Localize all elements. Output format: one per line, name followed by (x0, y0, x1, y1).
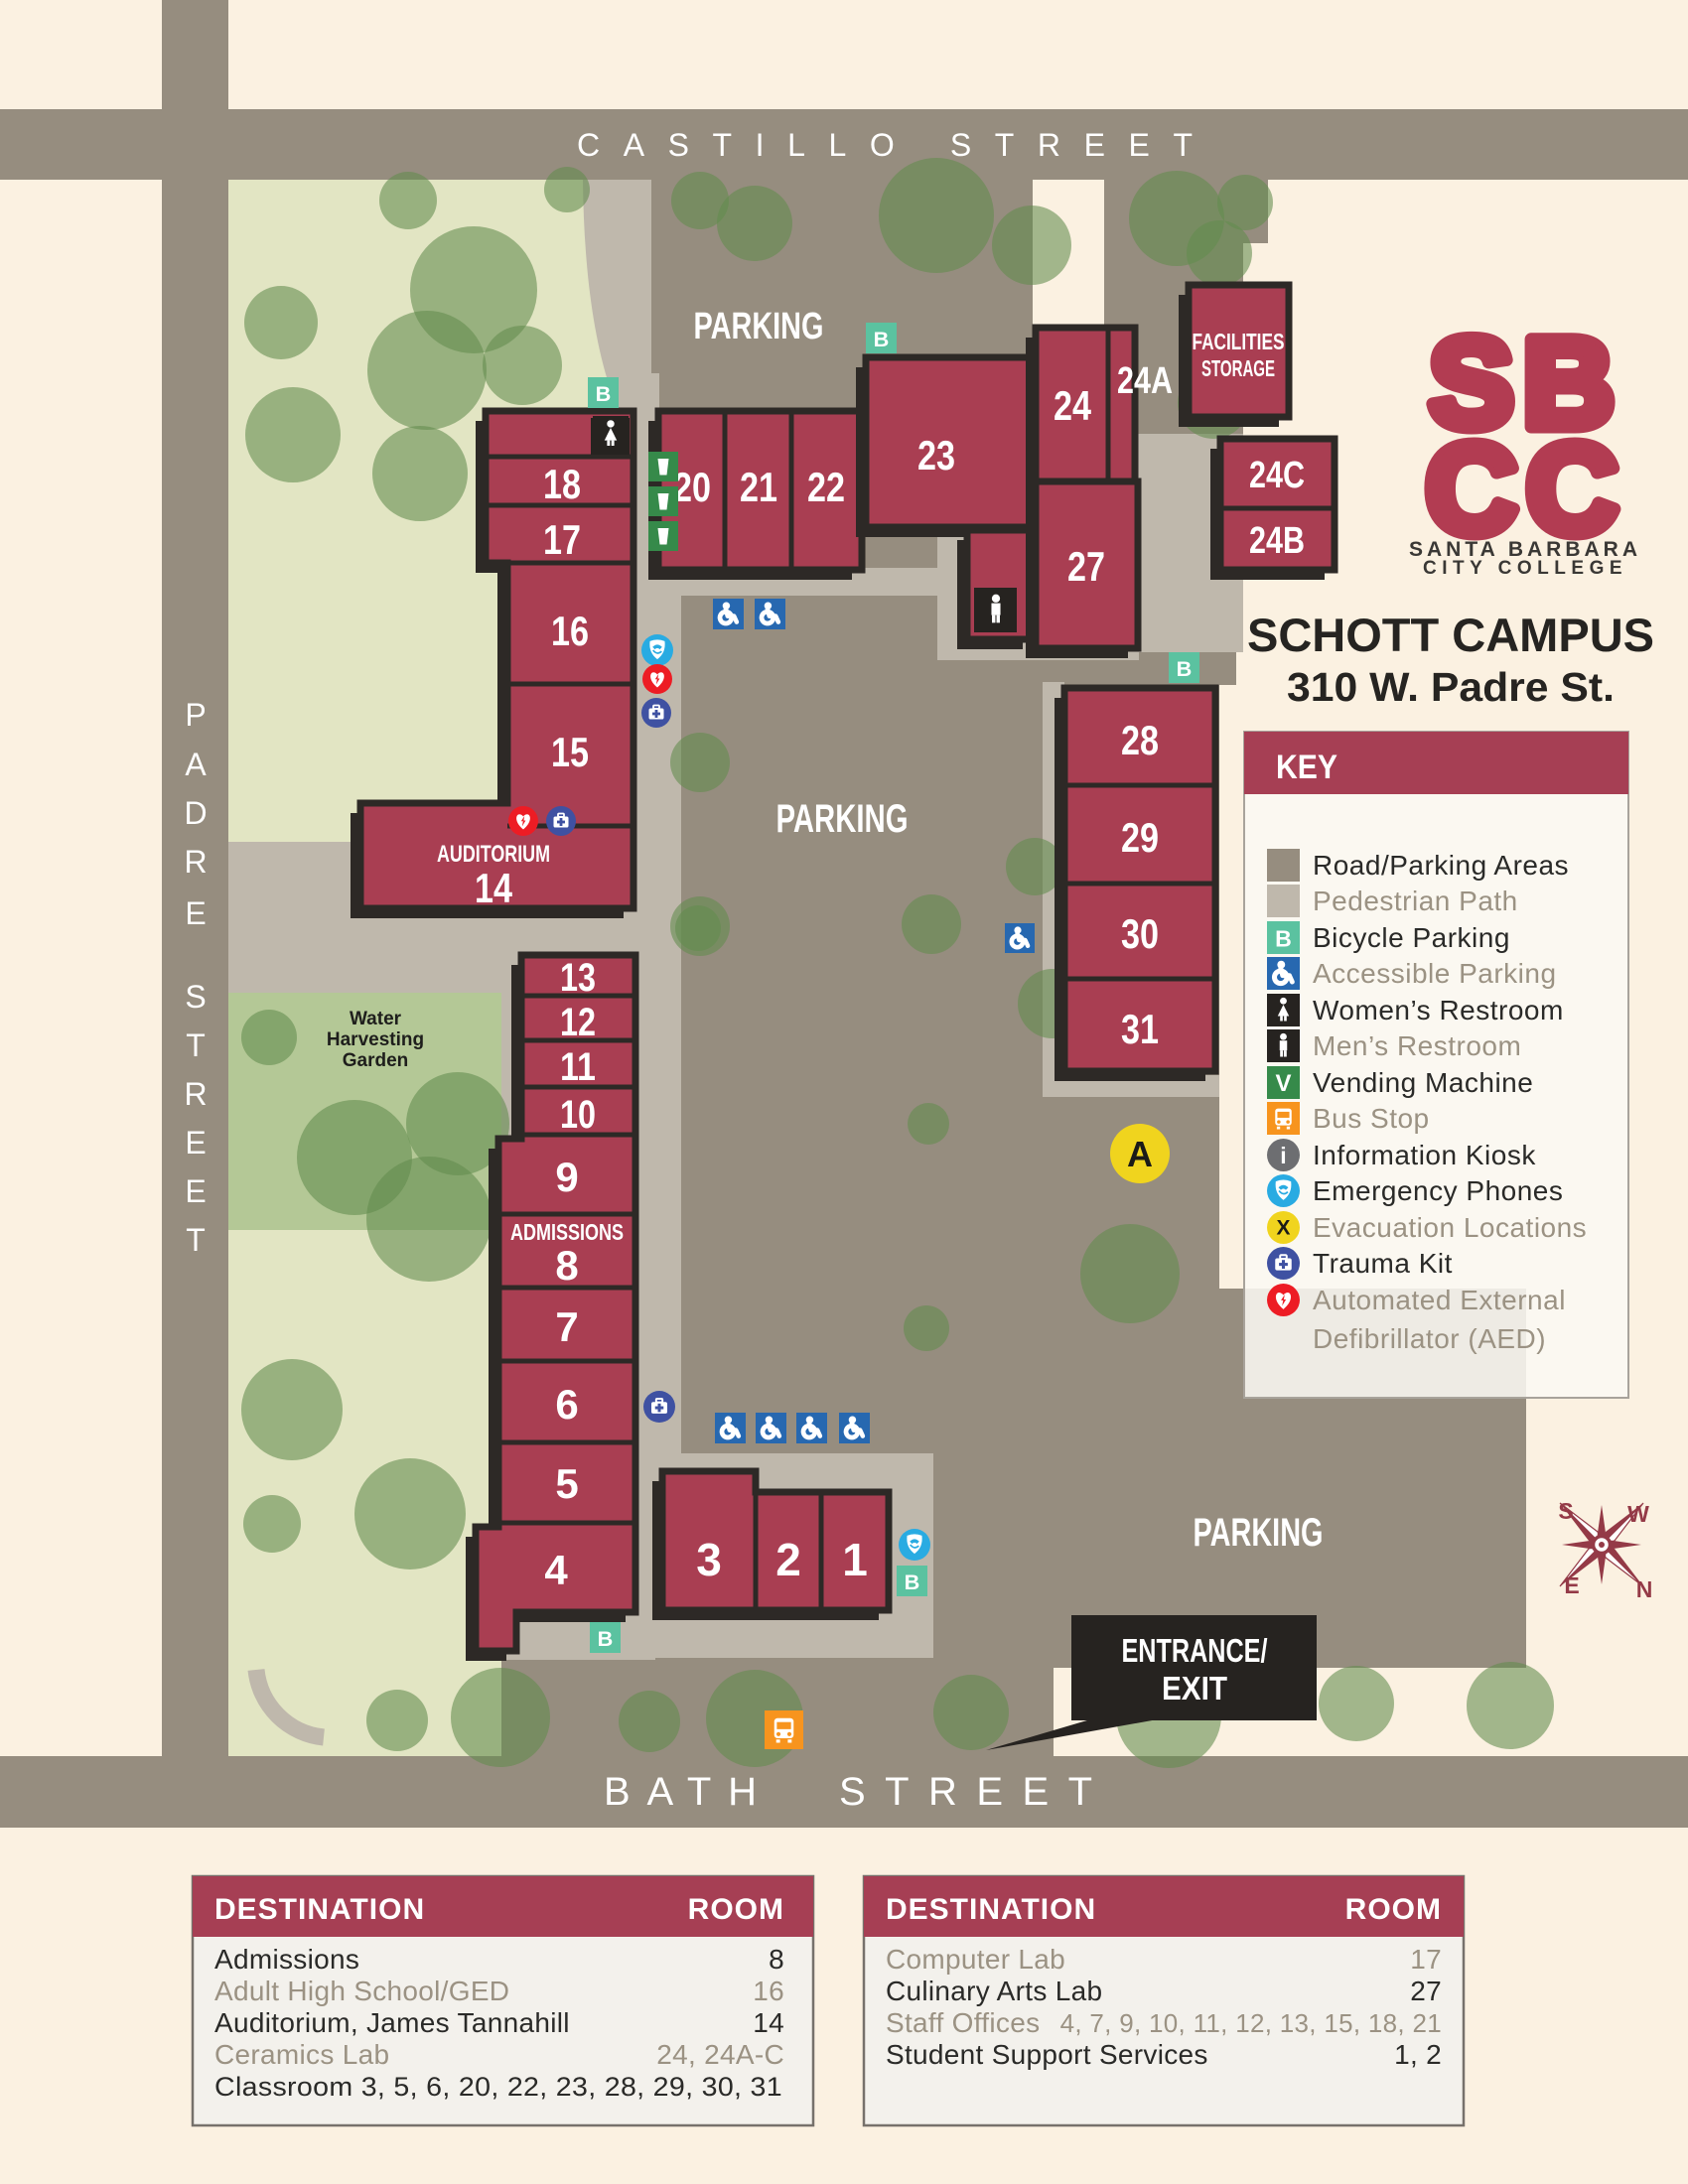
svg-text:DESTINATION: DESTINATION (214, 1893, 425, 1926)
svg-text:24C: 24C (1249, 455, 1305, 496)
svg-text:310 W. Padre St.: 310 W. Padre St. (1287, 664, 1615, 710)
svg-text:T: T (186, 1222, 206, 1258)
svg-text:ROOM: ROOM (1345, 1893, 1442, 1926)
svg-text:10: 10 (560, 1093, 596, 1137)
svg-text:Computer Lab: Computer Lab (886, 1944, 1065, 1975)
svg-text:28: 28 (1121, 717, 1159, 763)
svg-text:Student Support Services: Student Support Services (886, 2039, 1208, 2070)
svg-text:Automated External: Automated External (1313, 1285, 1566, 1315)
svg-text:24, 24A-C: 24, 24A-C (656, 2039, 784, 2070)
svg-text:T: T (186, 1027, 206, 1063)
svg-text:17: 17 (543, 516, 581, 563)
svg-text:24: 24 (1054, 382, 1092, 429)
svg-text:4, 7, 9, 10, 11, 12, 13, 15, 1: 4, 7, 9, 10, 11, 12, 13, 15, 18, 21 (1060, 2008, 1442, 2038)
svg-text:Defibrillator (AED): Defibrillator (AED) (1313, 1323, 1546, 1354)
svg-text:1: 1 (842, 1534, 868, 1585)
svg-text:8: 8 (555, 1242, 578, 1289)
svg-text:CASTILLO STREET: CASTILLO STREET (577, 127, 1193, 163)
svg-text:Evacuation Locations: Evacuation Locations (1313, 1212, 1587, 1243)
svg-text:DESTINATION: DESTINATION (886, 1893, 1096, 1926)
svg-text:4: 4 (544, 1547, 568, 1593)
svg-text:24B: 24B (1249, 520, 1305, 562)
svg-text:Classroom 3, 5, 6, 20, 22, 23,: Classroom 3, 5, 6, 20, 22, 23, 28, 29, 3… (214, 2072, 782, 2102)
svg-text:E: E (1564, 1572, 1579, 1598)
svg-text:S: S (185, 979, 206, 1015)
svg-text:31: 31 (1121, 1006, 1159, 1052)
svg-text:15: 15 (551, 729, 589, 775)
svg-text:Information Kiosk: Information Kiosk (1313, 1140, 1536, 1170)
svg-text:ROOM: ROOM (688, 1893, 784, 1926)
svg-text:14: 14 (753, 2007, 784, 2038)
svg-text:Garden: Garden (343, 1050, 409, 1071)
svg-text:9: 9 (555, 1154, 578, 1200)
svg-text:6: 6 (555, 1381, 578, 1428)
svg-text:P: P (185, 697, 206, 733)
svg-text:12: 12 (560, 1001, 596, 1044)
svg-text:SCHOTT CAMPUS: SCHOTT CAMPUS (1247, 609, 1654, 661)
svg-text:D: D (184, 795, 207, 831)
svg-text:Admissions: Admissions (214, 1944, 359, 1975)
svg-text:Trauma Kit: Trauma Kit (1313, 1248, 1453, 1279)
svg-text:KEY: KEY (1276, 749, 1337, 786)
svg-text:Women’s Restroom: Women’s Restroom (1313, 995, 1564, 1025)
svg-text:21: 21 (740, 464, 777, 510)
svg-text:Auditorium, James Tannahill: Auditorium, James Tannahill (214, 2007, 570, 2038)
svg-text:8: 8 (769, 1944, 784, 1975)
svg-text:27: 27 (1067, 543, 1105, 590)
svg-text:Men’s Restroom: Men’s Restroom (1313, 1030, 1521, 1061)
svg-text:FACILITIES: FACILITIES (1193, 329, 1285, 354)
svg-text:W: W (1627, 1501, 1649, 1527)
svg-text:STORAGE: STORAGE (1201, 355, 1275, 381)
svg-text:A: A (1127, 1134, 1153, 1174)
svg-text:27: 27 (1410, 1976, 1442, 2006)
svg-text:Bus Stop: Bus Stop (1313, 1103, 1430, 1134)
svg-text:CITY COLLEGE: CITY COLLEGE (1423, 558, 1627, 579)
svg-text:Water: Water (350, 1009, 402, 1029)
svg-text:PARKING: PARKING (694, 306, 824, 347)
svg-text:Pedestrian Path: Pedestrian Path (1313, 886, 1518, 916)
svg-text:Ceramics Lab: Ceramics Lab (214, 2039, 389, 2070)
svg-text:E: E (185, 895, 206, 931)
svg-text:16: 16 (753, 1976, 784, 2006)
svg-text:24A: 24A (1117, 360, 1173, 402)
svg-text:N: N (1636, 1576, 1653, 1602)
svg-text:A: A (185, 747, 207, 782)
svg-text:E: E (185, 1125, 206, 1160)
svg-text:3: 3 (696, 1534, 722, 1585)
svg-text:17: 17 (1410, 1944, 1442, 1975)
svg-text:PARKING: PARKING (776, 797, 909, 841)
svg-text:13: 13 (560, 956, 596, 1000)
svg-text:18: 18 (543, 461, 581, 507)
svg-text:ENTRANCE/: ENTRANCE/ (1122, 1632, 1268, 1669)
svg-text:1, 2: 1, 2 (1394, 2039, 1442, 2070)
svg-text:Culinary Arts Lab: Culinary Arts Lab (886, 1976, 1102, 2006)
svg-text:14: 14 (475, 865, 513, 911)
svg-text:7: 7 (555, 1303, 578, 1350)
svg-text:S: S (1558, 1498, 1573, 1524)
svg-text:Accessible Parking: Accessible Parking (1313, 958, 1557, 989)
svg-text:E: E (185, 1173, 206, 1209)
svg-text:11: 11 (560, 1045, 596, 1089)
svg-text:Staff Offices: Staff Offices (886, 2007, 1040, 2038)
svg-text:Emergency Phones: Emergency Phones (1313, 1175, 1563, 1206)
svg-text:AUDITORIUM: AUDITORIUM (437, 841, 550, 868)
svg-text:Adult High School/GED: Adult High School/GED (214, 1976, 509, 2006)
svg-text:Vending Machine: Vending Machine (1313, 1067, 1533, 1098)
svg-text:Harvesting: Harvesting (327, 1029, 424, 1050)
svg-text:22: 22 (807, 464, 845, 510)
svg-text:R: R (184, 1076, 207, 1112)
svg-text:Bicycle Parking: Bicycle Parking (1313, 922, 1510, 953)
svg-text:30: 30 (1121, 910, 1159, 957)
svg-text:R: R (184, 844, 207, 880)
svg-text:Road/Parking Areas: Road/Parking Areas (1313, 850, 1569, 881)
svg-text:2: 2 (775, 1534, 801, 1585)
svg-text:EXIT: EXIT (1162, 1670, 1227, 1706)
svg-text:23: 23 (917, 432, 955, 478)
svg-text:PARKING: PARKING (1194, 1511, 1324, 1555)
svg-text:5: 5 (555, 1460, 578, 1507)
svg-text:29: 29 (1121, 814, 1159, 861)
svg-text:16: 16 (551, 608, 589, 654)
svg-text:20: 20 (673, 464, 711, 510)
svg-text:V: V (1275, 1070, 1291, 1097)
